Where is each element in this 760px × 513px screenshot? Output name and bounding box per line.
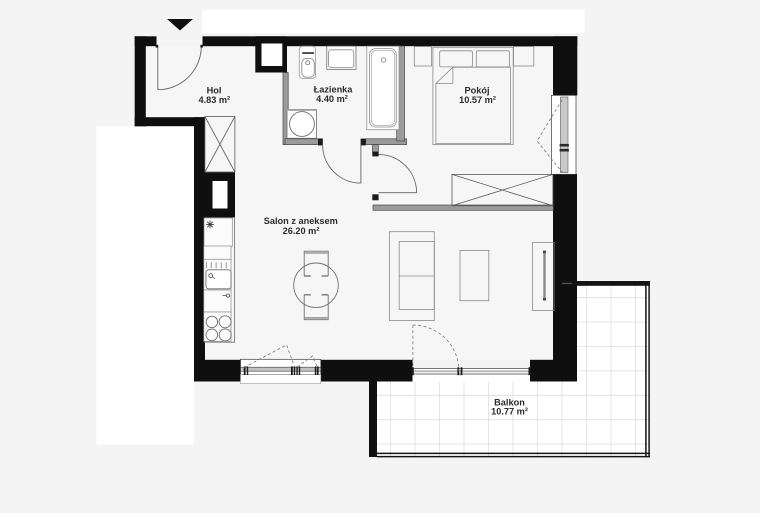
svg-text:10.77 m²: 10.77 m² xyxy=(491,406,528,416)
svg-text:Salon z aneksem: Salon z aneksem xyxy=(264,216,338,226)
svg-text:26.20 m²: 26.20 m² xyxy=(283,226,320,236)
svg-text:10.57 m²: 10.57 m² xyxy=(459,95,496,105)
svg-text:4.40 m²: 4.40 m² xyxy=(316,94,348,104)
svg-text:4.83 m²: 4.83 m² xyxy=(198,95,230,105)
